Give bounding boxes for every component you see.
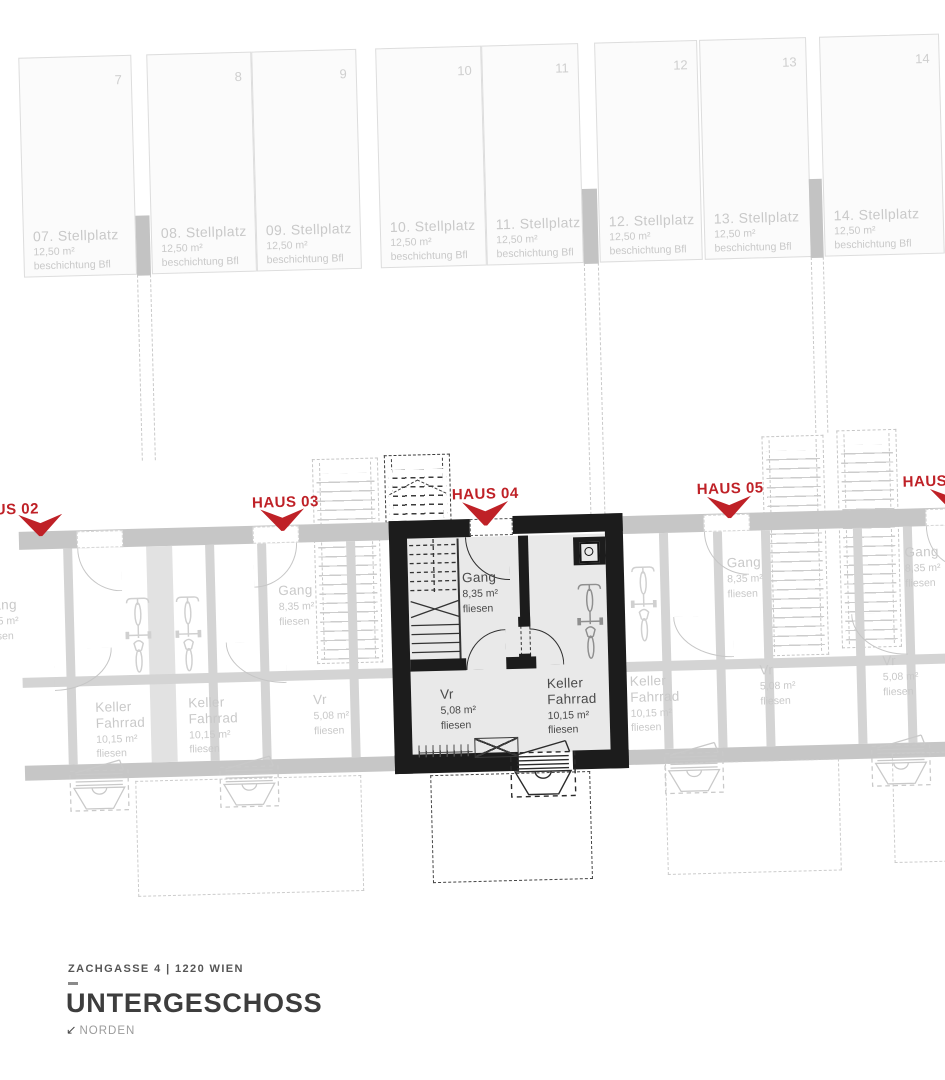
room-label-h05-keller: Keller Fahrrad 10,15 m² fliesen [630,672,696,734]
north-arrow-icon: ↙ [66,1023,77,1037]
stall-info: 11. Stellplatz 12,50 m² beschichtung Bfl [496,214,582,260]
stall-number: 10 [457,63,472,78]
room-label-h06-vr: Vr 5,08 m² fliesen [882,652,945,698]
projection-line [823,257,829,433]
projection-line [598,263,606,515]
parking-stall-13: 13 13. Stellplatz 12,50 m² beschichtung … [699,37,812,260]
garden-outline [135,775,364,897]
floor-title: UNTERGESCHOSS [66,988,322,1019]
stall-info: 12. Stellplatz 12,50 m² beschichtung Bfl [609,211,696,257]
haus04-top-wall [512,513,622,534]
cellar-exit-hatch [67,757,132,817]
room-label-h05-vr: Vr 5,08 m² fliesen [759,661,824,707]
stall-info: 08. Stellplatz 12,50 m² beschichtung Bfl [161,223,248,269]
stair-treads [766,450,825,652]
door-arc [77,547,122,592]
stall-info: 10. Stellplatz 12,50 m² beschichtung Bfl [390,217,477,263]
haus06-label: HAUS 06 [902,472,945,491]
stall-number: 7 [114,72,122,87]
stall-number: 13 [782,54,797,69]
haus04-stair [407,538,462,661]
bicycle-icon [122,582,154,675]
bicycle-icon [627,551,659,644]
room-label-h04-keller: Keller Fahrrad 10,15 m² fliesen [547,674,613,736]
stall-info: 09. Stellplatz 12,50 m² beschichtung Bfl [266,220,353,266]
faded-entry-door-opening [253,526,299,544]
room-label-h02-keller: Keller Fahrrad 10,15 m² fliesen [95,698,161,760]
north-label: NORDEN [79,1025,135,1037]
room-label-h06-gang: Gang 8,35 m² fliesen [904,543,945,589]
projection-line [811,257,817,433]
bicycle-icon [574,569,606,662]
stall-number: 8 [234,69,242,84]
projection-line [584,263,592,515]
room-label-h04-gang: Gang 8,35 m² fliesen [462,569,527,615]
stall-divider [135,215,151,275]
floorplan-canvas: 7 07. Stellplatz 12,50 m² beschichtung B… [0,0,945,1080]
site-plan: 7 07. Stellplatz 12,50 m² beschichtung B… [0,0,945,1080]
parking-stall-09: 9 09. Stellplatz 12,50 m² beschichtung B… [251,49,362,272]
projection-line [150,274,156,460]
parking-stall-14: 14 14. Stellplatz 12,50 m² beschichtung … [819,34,945,257]
haus04-label: HAUS 04 [452,485,519,504]
stair-treads [388,469,447,520]
haus03-label: HAUS 03 [252,493,319,512]
haus04-bottom-wall [573,749,629,769]
garden-outline [665,758,842,875]
stall-number: 14 [915,51,930,66]
haus04-top-wall [389,519,471,539]
stall-info: 07. Stellplatz 12,50 m² beschichtung Bfl [33,226,120,272]
stall-divider [582,189,599,264]
stall-divider [809,179,824,258]
room-label-h05-gang: Gang 8,35 m² fliesen [727,554,792,600]
haus04-cellar-exit [507,737,579,803]
north-indicator: ↙NORDEN [66,1022,135,1037]
bicycle-icon [172,581,204,674]
room-label-h04-vr: Vr 5,08 m² fliesen [440,685,505,731]
room-label-h02-gang: Gang 8,35 m² fliesen [0,596,48,642]
faded-entry-door-opening [925,508,945,526]
haus02-label: HAUS 02 [0,500,39,519]
door-arc [253,543,298,588]
parking-stall-07: 7 07. Stellplatz 12,50 m² beschichtung B… [18,55,137,278]
projection-line [137,275,143,461]
garden-outline [892,749,945,863]
heater-symbol [418,744,472,757]
parking-stall-11: 11 11. Stellplatz 12,50 m² beschichtung … [481,43,584,265]
parking-stall-08: 8 08. Stellplatz 12,50 m² beschichtung B… [146,52,257,275]
room-label-h03-vr: Vr 5,08 m² fliesen [313,691,378,737]
parking-stall-12: 12 12. Stellplatz 12,50 m² beschichtung … [594,40,703,263]
stall-info: 14. Stellplatz 12,50 m² beschichtung Bfl [833,205,920,251]
door-arc [673,615,734,659]
parking-stall-10: 10 10. Stellplatz 12,50 m² beschichtung … [375,46,487,269]
stall-number: 12 [673,57,688,72]
stall-number: 11 [555,60,569,75]
title-divider [68,982,78,985]
haus04-door-jamb [518,617,530,627]
haus04-interior-wall [410,658,466,671]
haus05-label: HAUS 05 [697,479,764,498]
room-label-h03-keller: Keller Fahrrad 10,15 m² fliesen [188,694,254,756]
exterior-stair-haus04 [384,454,452,524]
faded-entry-door-opening [77,530,123,548]
room-label-h03-gang: Gang 8,35 m² fliesen [278,581,343,627]
project-address: ZACHGASSE 4 | 1220 WIEN [68,963,244,975]
stall-number: 9 [339,66,347,81]
stall-info: 13. Stellplatz 12,50 m² beschichtung Bfl [714,208,801,254]
